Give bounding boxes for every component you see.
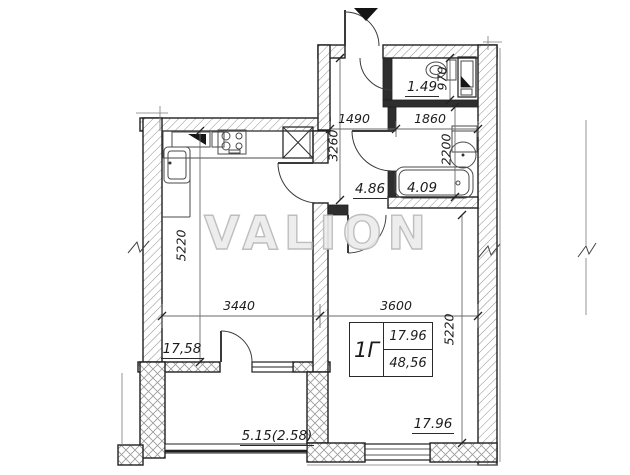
dim-kitchen-width: 3440 xyxy=(209,298,269,313)
unit-living-area: 17.96 xyxy=(384,323,432,350)
area-kitchen-living: 17,58 xyxy=(152,342,212,357)
area-wc: 1.49 xyxy=(400,80,444,95)
wall-bedroom-bottom-a xyxy=(307,443,365,462)
wall-upper-left xyxy=(318,45,330,130)
wall-break-far-right xyxy=(578,243,596,257)
dim-kitchen-depth: 5220 xyxy=(174,216,189,276)
dim-bathroom-width: 1860 xyxy=(408,111,452,126)
wall-bedroom-bottom-b xyxy=(430,443,497,462)
balcony-door xyxy=(221,331,252,362)
kitchen-stove xyxy=(218,130,246,154)
dim-bedroom-width: 3600 xyxy=(366,298,426,313)
kitchen-balcony-window xyxy=(252,362,293,372)
washbasin xyxy=(450,142,476,168)
wall-bath-left-upper xyxy=(388,107,396,131)
unit-total-area: 48,56 xyxy=(384,350,432,376)
entrance-door xyxy=(345,8,379,46)
bathroom-door xyxy=(352,131,392,171)
wall-balcony-corner xyxy=(118,445,143,465)
dim-hallway-depth: 3260 xyxy=(326,124,341,168)
kitchen-counter xyxy=(162,131,310,217)
watermark: VALION xyxy=(198,206,438,264)
kitchen-unit xyxy=(172,132,224,147)
bedroom-window xyxy=(365,444,430,460)
wall-kitchen-top xyxy=(140,118,330,131)
unit-name: 1Г xyxy=(350,323,383,376)
floor-plan: VALION 1490 1860 3260 970 2200 3440 3600… xyxy=(0,0,630,475)
wall-balcony-left xyxy=(140,362,165,458)
unit-info-box: 1Г 17.96 48,56 xyxy=(349,322,433,377)
area-bathroom: 4.09 xyxy=(397,181,447,196)
dim-bedroom-depth: 5220 xyxy=(442,300,457,360)
area-bedroom: 17.96 xyxy=(403,417,463,432)
wall-wc-left xyxy=(383,58,392,100)
kitchen-door xyxy=(278,163,318,203)
kitchen-sink xyxy=(164,147,190,183)
washing-machine xyxy=(452,126,477,152)
dim-bathroom-depth: 2200 xyxy=(439,128,454,172)
wc-cabinet xyxy=(458,57,476,97)
area-hallway: 4.86 xyxy=(345,182,395,197)
wall-wc-bath-divider xyxy=(383,100,478,107)
area-balcony: 5.15(2.58) xyxy=(227,429,327,444)
